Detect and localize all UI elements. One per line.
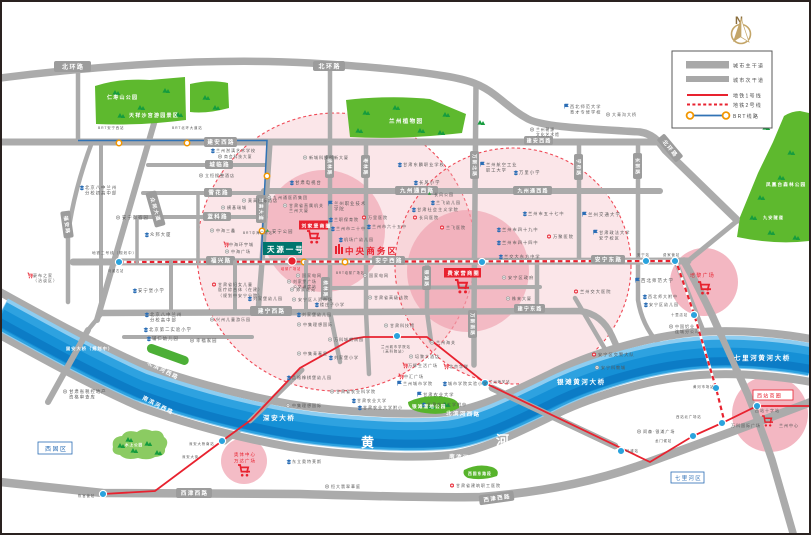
svg-text:品格橡棋堡幼儿园: 品格橡棋堡幼儿园 <box>292 374 332 380</box>
svg-text:黄河市场站: 黄河市场站 <box>693 384 714 389</box>
svg-text:兰州交大医院: 兰州交大医院 <box>580 288 611 295</box>
svg-text:安宁区幼儿园: 安宁区幼儿园 <box>649 301 679 307</box>
svg-text:西固东路段: 西固东路段 <box>468 471 492 476</box>
svg-text:甘肃社会主义学院: 甘肃社会主义学院 <box>417 206 459 213</box>
svg-text:中央商务区: 中央商务区 <box>345 246 398 256</box>
svg-text:兰州植物园: 兰州植物园 <box>389 117 423 125</box>
svg-text:（高科院站）: （高科院站） <box>381 349 406 354</box>
svg-text:水上公园: 水上公园 <box>124 442 143 447</box>
svg-text:兰州海关站: 兰州海关站 <box>489 379 510 384</box>
svg-text:商会科技大厦: 商会科技大厦 <box>224 154 252 159</box>
svg-text:地铁二号线（规划中）: 地铁二号线（规划中） <box>92 250 137 255</box>
svg-text:兰州交通大学: 兰州交通大学 <box>588 211 621 218</box>
svg-text:兰州澍漓艺术学校: 兰州澍漓艺术学校 <box>216 147 256 153</box>
svg-text:分校高中部: 分校高中部 <box>150 317 177 324</box>
svg-text:学院: 学院 <box>334 206 345 213</box>
svg-text:兰州中心: 兰州中心 <box>779 422 799 428</box>
svg-text:安宁校区: 安宁校区 <box>599 234 620 241</box>
svg-text:中集理想国际: 中集理想国际 <box>303 321 333 327</box>
svg-text:西津西路: 西津西路 <box>181 489 209 497</box>
svg-text:十里店站: 十里店站 <box>671 312 688 317</box>
svg-text:甘肃电视台: 甘肃电视台 <box>295 179 322 186</box>
svg-text:刘家堡商圈: 刘家堡商圈 <box>302 223 332 230</box>
svg-text:甘肃科技馆: 甘肃科技馆 <box>390 322 415 328</box>
svg-text:仁寿山公园: 仁寿山公园 <box>107 94 138 101</box>
svg-text:培黎广场站: 培黎广场站 <box>281 266 301 271</box>
svg-text:中海三鑫: 中海三鑫 <box>216 227 236 233</box>
svg-text:甘肃省建筑职工医院: 甘肃省建筑职工医院 <box>456 482 501 488</box>
svg-text:甘肃农业大学: 甘肃农业大学 <box>423 391 454 398</box>
svg-text:培黎大酒店: 培黎大酒店 <box>415 353 440 359</box>
svg-text:地铁2号线: 地铁2号线 <box>733 102 762 109</box>
svg-text:兰职保育院: 兰职保育院 <box>334 216 359 222</box>
svg-text:兰州市四十四中: 兰州市四十四中 <box>502 239 539 246</box>
svg-text:兰州城市学院站: 兰州城市学院站 <box>381 344 411 349</box>
svg-text:黄: 黄 <box>361 435 377 450</box>
svg-text:银滩路: 银滩路 <box>423 269 430 287</box>
svg-text:安宁区交警大队: 安宁区交警大队 <box>598 351 635 358</box>
svg-text:九州通医药集团: 九州通医药集团 <box>273 194 308 200</box>
svg-text:国家电网: 国家电网 <box>369 272 389 278</box>
svg-text:（洽谈区）: （洽谈区） <box>33 277 58 283</box>
svg-text:河: 河 <box>496 433 512 448</box>
svg-text:兴州儿童游乐园: 兴州儿童游乐园 <box>216 316 251 322</box>
svg-text:万里医院: 万里医院 <box>368 214 388 220</box>
svg-text:文化艺术馆: 文化艺术馆 <box>536 132 560 137</box>
svg-text:楼庄子小学: 楼庄子小学 <box>320 301 345 307</box>
svg-text:枣林路: 枣林路 <box>362 157 369 175</box>
svg-text:马滩右站: 马滩右站 <box>108 268 124 273</box>
svg-text:众邦大厦: 众邦大厦 <box>150 231 172 238</box>
svg-text:西固区: 西固区 <box>45 446 68 453</box>
svg-text:天源一号: 天源一号 <box>267 244 305 254</box>
svg-text:天祥沙宫游园景区: 天祥沙宫游园景区 <box>129 112 179 119</box>
svg-text:职工大学: 职工大学 <box>486 166 507 173</box>
svg-text:国家电网: 国家电网 <box>302 272 322 278</box>
svg-text:甘肃省妇女儿童: 甘肃省妇女儿童 <box>218 281 253 287</box>
svg-text:东立奥特莱斯: 东立奥特莱斯 <box>292 458 322 464</box>
svg-text:中国铝业: 中国铝业 <box>675 323 695 329</box>
svg-text:新城科技创新大厦: 新城科技创新大厦 <box>309 154 349 160</box>
svg-text:兰州大厦: 兰州大厦 <box>289 207 309 213</box>
svg-text:幸福家园: 幸福家园 <box>196 337 218 344</box>
svg-text:七里河黄河大桥: 七里河黄河大桥 <box>734 353 791 362</box>
svg-text:兰州海关: 兰州海关 <box>436 339 456 345</box>
svg-text:BRT培黎广场站: BRT培黎广场站 <box>336 270 365 275</box>
svg-text:立恒搜整酒店: 立恒搜整酒店 <box>205 172 235 178</box>
svg-text:陈官营站: 陈官营站 <box>78 493 95 498</box>
svg-text:长新路: 长新路 <box>634 158 641 175</box>
svg-text:深安大街: 深安大街 <box>182 454 199 459</box>
svg-text:深安大桥: 深安大桥 <box>263 413 296 422</box>
svg-text:万里小学: 万里小学 <box>519 169 541 176</box>
svg-text:凤凰台森林公园: 凤凰台森林公园 <box>766 181 806 188</box>
svg-text:九州通西路: 九州通西路 <box>516 187 548 194</box>
svg-text:长风公园: 长风公园 <box>434 191 454 197</box>
svg-text:城临路: 城临路 <box>209 161 230 169</box>
svg-text:蓝科路: 蓝科路 <box>207 213 228 221</box>
svg-text:万辉生活广场: 万辉生活广场 <box>408 362 438 368</box>
svg-text:刘家堡小学: 刘家堡小学 <box>334 354 359 360</box>
svg-text:建安西路: 建安西路 <box>207 138 235 146</box>
svg-text:兰飞幼儿园: 兰飞幼儿园 <box>436 199 461 205</box>
svg-text:安宁西路: 安宁西路 <box>375 257 403 265</box>
svg-text:恒大翡翠華庭: 恒大翡翠華庭 <box>331 483 361 489</box>
svg-text:莫高国际酒店: 莫高国际酒店 <box>248 197 278 203</box>
svg-text:银滩湿地公园: 银滩湿地公园 <box>411 403 446 410</box>
svg-text:安宁御宿园: 安宁御宿园 <box>122 214 149 221</box>
svg-text:桃林路: 桃林路 <box>326 158 333 175</box>
svg-text:万新北路: 万新北路 <box>471 153 478 177</box>
svg-text:兰州市二十中: 兰州市二十中 <box>336 225 366 231</box>
svg-text:甘肃省高级法院: 甘肃省高级法院 <box>374 294 409 300</box>
svg-text:培黎广场: 培黎广场 <box>690 272 715 279</box>
svg-text:分校初高中部: 分校初高中部 <box>85 190 117 197</box>
svg-text:中海环宇城: 中海环宇城 <box>229 241 254 247</box>
svg-text:九安隧道: 九安隧道 <box>762 214 784 221</box>
svg-text:城市次干道: 城市次干道 <box>733 77 764 84</box>
svg-text:西站十字站: 西站十字站 <box>755 407 780 413</box>
svg-text:桃林路: 桃林路 <box>322 280 329 297</box>
svg-text:北京第二实验小学: 北京第二实验小学 <box>149 326 192 333</box>
svg-text:甘肃农业大学附小: 甘肃农业大学附小 <box>363 404 403 410</box>
svg-text:安宁公园: 安宁公园 <box>272 228 294 235</box>
svg-text:费家营站: 费家营站 <box>663 252 680 257</box>
svg-text:城市学院实验小学: 城市学院实验小学 <box>448 380 488 386</box>
svg-text:中汇广场: 中汇广场 <box>404 373 424 379</box>
svg-text:刘家堡幼儿园: 刘家堡幼儿园 <box>302 311 332 317</box>
svg-text:西北师范大学: 西北师范大学 <box>641 277 674 284</box>
svg-text:建安西路: 建安西路 <box>526 137 552 144</box>
svg-text:医疗综合体（在建）: 医疗综合体（在建） <box>218 286 263 292</box>
svg-text:银滩黄河大桥: 银滩黄河大桥 <box>557 377 606 386</box>
svg-text:安宁科教城: 安宁科教城 <box>601 364 626 370</box>
svg-text:甘肃东麟职业学校: 甘肃东麟职业学校 <box>403 161 445 168</box>
svg-text:固安大桥（规划中）: 固安大桥（规划中） <box>66 345 113 352</box>
svg-text:学府路: 学府路 <box>575 159 582 176</box>
svg-text:北环路: 北环路 <box>62 63 85 71</box>
svg-text:万科城朗润园: 万科城朗润园 <box>334 336 364 342</box>
svg-text:龙门候站: 龙门候站 <box>655 438 672 443</box>
svg-text:万聚医院: 万聚医院 <box>553 233 574 240</box>
svg-text:横基瑞城: 横基瑞城 <box>227 204 247 210</box>
svg-text:长风小学: 长风小学 <box>419 179 441 186</box>
svg-text:甘肃省农业科学院: 甘肃省农业科学院 <box>336 388 376 394</box>
svg-text:兰州城市学院: 兰州城市学院 <box>403 380 433 386</box>
svg-text:兰州市五十七中: 兰州市五十七中 <box>528 210 565 217</box>
svg-text:地铁1号线: 地铁1号线 <box>733 93 762 100</box>
svg-text:北环路: 北环路 <box>318 62 341 70</box>
svg-text:兰飞医院: 兰飞医院 <box>446 224 466 230</box>
svg-text:兰交大东方中学: 兰交大东方中学 <box>504 253 541 260</box>
svg-text:株来大厦: 株来大厦 <box>512 295 532 301</box>
svg-text:城市主干道: 城市主干道 <box>733 63 764 70</box>
svg-text:BRT线路: BRT线路 <box>733 113 759 120</box>
svg-text:甘肃农业大学: 甘肃农业大学 <box>357 397 387 403</box>
svg-text:费家营商圈: 费家营商圈 <box>448 269 480 277</box>
svg-text:兰州朝源: 兰州朝源 <box>536 127 555 132</box>
svg-text:西站北广场站: 西站北广场站 <box>676 414 701 419</box>
svg-text:中集理想国际: 中集理想国际 <box>292 402 322 408</box>
svg-text:公交调度站: 公交调度站 <box>293 284 317 289</box>
svg-text:奥体中心: 奥体中心 <box>234 451 256 458</box>
svg-text:中集青春里: 中集青春里 <box>303 350 328 356</box>
svg-text:建宁西路: 建宁西路 <box>258 307 286 315</box>
svg-text:BRT北环大道站: BRT北环大道站 <box>172 125 202 130</box>
svg-text:闵森·银滩广场: 闵森·银滩广场 <box>643 428 675 434</box>
svg-text:资格审查库: 资格审查库 <box>69 394 96 401</box>
svg-text:雪花路: 雪花路 <box>208 189 229 197</box>
svg-text:中海广场: 中海广场 <box>231 248 251 254</box>
svg-text:西站商圈: 西站商圈 <box>757 393 782 400</box>
svg-text:大青沟大桥: 大青沟大桥 <box>612 111 637 117</box>
svg-text:育才专修学校: 育才专修学校 <box>570 108 601 115</box>
svg-text:刘家堡幼儿园: 刘家堡幼儿园 <box>253 295 283 301</box>
svg-text:辅仁幼儿园: 辅仁幼儿园 <box>152 335 179 342</box>
svg-text:西北师大附中: 西北师大附中 <box>648 293 678 299</box>
svg-text:BRT安宁西站: BRT安宁西站 <box>98 125 124 130</box>
svg-text:安宁站: 安宁站 <box>637 252 650 257</box>
svg-text:长风医院: 长风医院 <box>419 214 439 220</box>
svg-text:刘家堡广场: 刘家堡广场 <box>293 279 317 284</box>
svg-text:万新南路: 万新南路 <box>469 312 476 336</box>
svg-text:甘肃省直属机关: 甘肃省直属机关 <box>289 202 324 208</box>
svg-text:安宁堡小学: 安宁堡小学 <box>138 287 165 294</box>
svg-text:马滩站: 马滩站 <box>626 448 639 453</box>
svg-text:深安大桥南站: 深安大桥南站 <box>189 441 214 446</box>
svg-text:连城分公司: 连城分公司 <box>675 328 700 334</box>
svg-text:机场广幼儿园: 机场广幼儿园 <box>344 236 374 242</box>
svg-text:安宁东路: 安宁东路 <box>595 256 623 264</box>
svg-text:安宁区政府: 安宁区政府 <box>508 274 534 281</box>
svg-text:福兴路: 福兴路 <box>210 257 232 265</box>
svg-text:北京华联: 北京华联 <box>449 363 469 369</box>
svg-text:七里河区: 七里河区 <box>675 474 702 482</box>
svg-text:万科国际广场: 万科国际广场 <box>731 422 761 428</box>
svg-text:豪布之家: 豪布之家 <box>33 272 53 278</box>
svg-text:万达广场: 万达广场 <box>234 458 256 465</box>
svg-text:建宁东路: 建宁东路 <box>517 305 543 312</box>
svg-text:兰州市六十五中: 兰州市六十五中 <box>372 223 407 229</box>
svg-text:兰州市四十九中: 兰州市四十九中 <box>502 226 539 233</box>
